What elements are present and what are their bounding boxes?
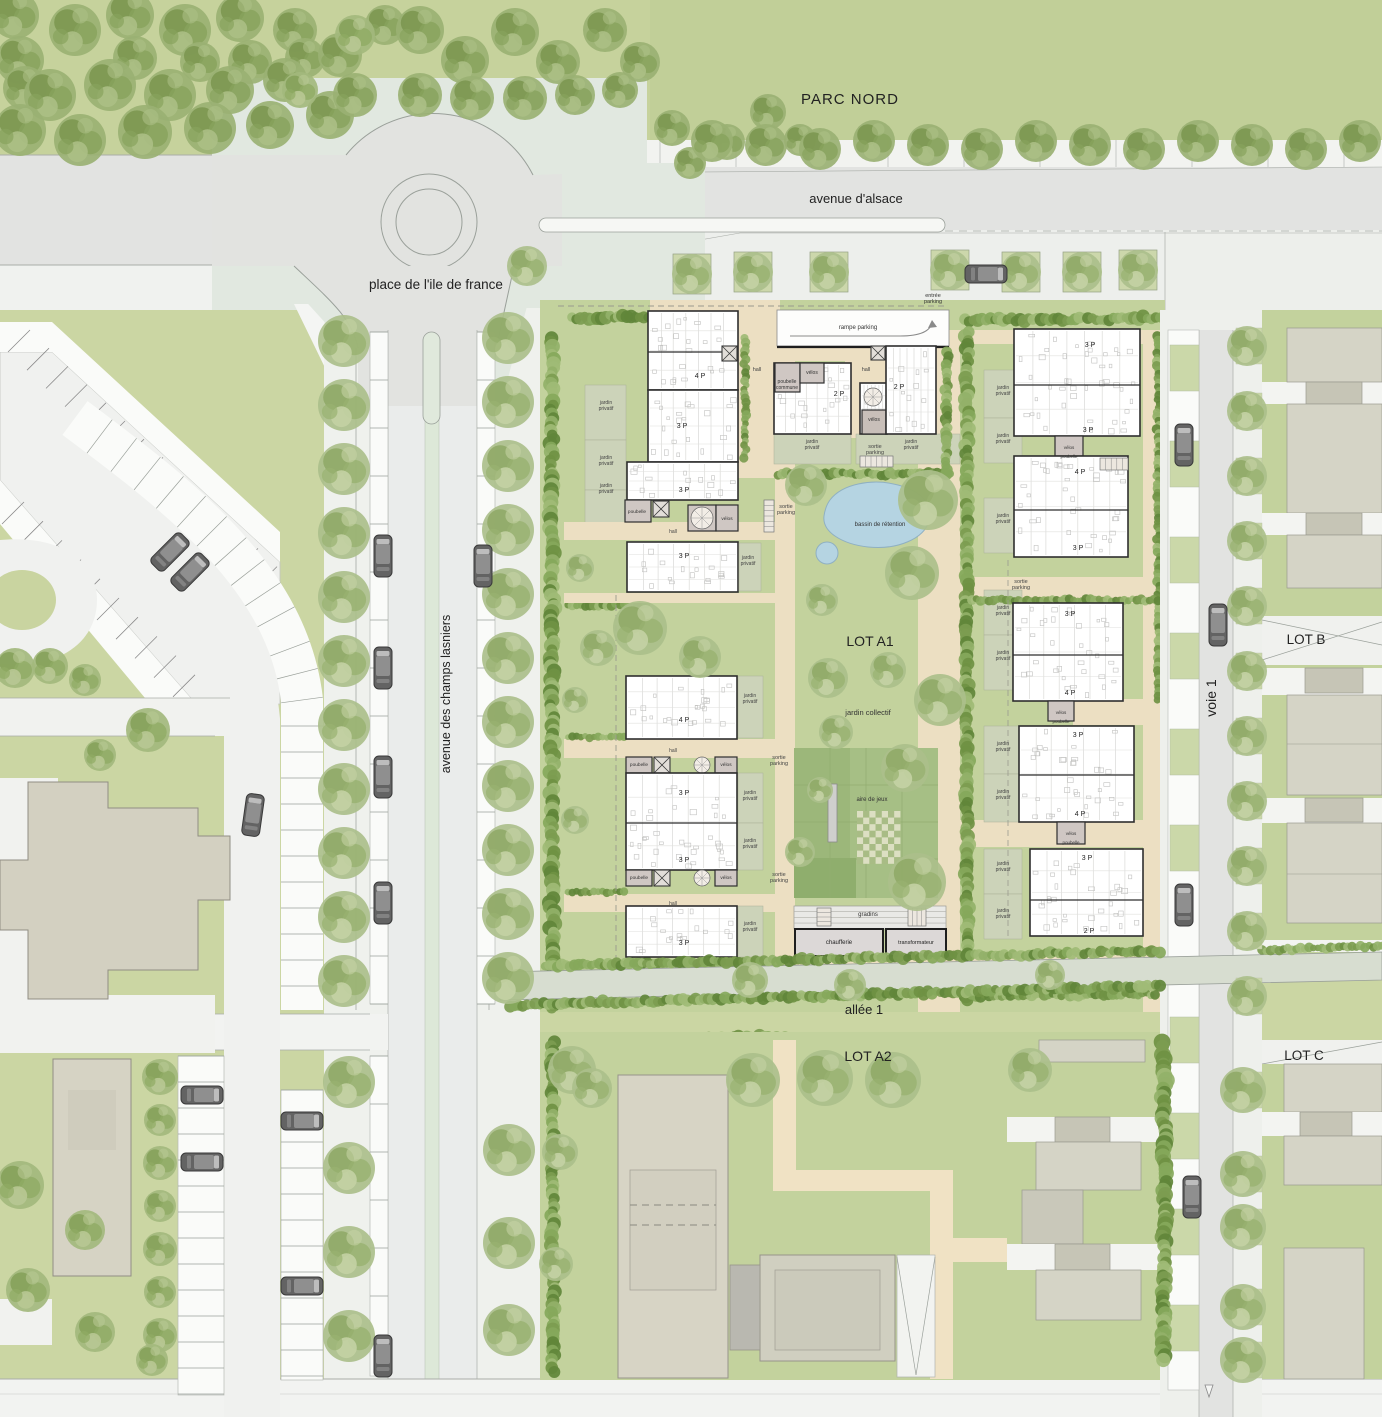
svg-text:parking: parking bbox=[770, 761, 788, 767]
svg-text:privatif: privatif bbox=[743, 844, 758, 850]
svg-text:3 P: 3 P bbox=[1065, 611, 1076, 618]
svg-text:4 P: 4 P bbox=[1075, 811, 1086, 818]
svg-text:vélos: vélos bbox=[806, 370, 818, 376]
svg-text:3 P: 3 P bbox=[679, 553, 690, 560]
svg-text:vélos: vélos bbox=[868, 417, 880, 423]
svg-text:vélos: vélos bbox=[720, 875, 732, 881]
svg-text:3 P: 3 P bbox=[677, 423, 688, 430]
svg-text:vélos: vélos bbox=[1066, 831, 1077, 836]
svg-text:privatif: privatif bbox=[805, 445, 820, 451]
svg-text:3 P: 3 P bbox=[679, 487, 690, 494]
svg-text:privatif: privatif bbox=[996, 914, 1011, 920]
svg-text:hall: hall bbox=[753, 367, 762, 373]
svg-text:privatif: privatif bbox=[996, 867, 1011, 873]
svg-text:privatif: privatif bbox=[904, 445, 919, 451]
svg-text:4 P: 4 P bbox=[1075, 469, 1086, 476]
svg-text:privatif: privatif bbox=[599, 489, 614, 495]
svg-text:vélos: vélos bbox=[1064, 445, 1075, 450]
svg-text:privatif: privatif bbox=[996, 439, 1011, 445]
svg-text:privatif: privatif bbox=[996, 611, 1011, 617]
svg-text:transformateur: transformateur bbox=[898, 940, 934, 946]
svg-text:poubelle: poubelle bbox=[1060, 454, 1078, 459]
svg-text:privatif: privatif bbox=[743, 796, 758, 802]
svg-text:rampe parking: rampe parking bbox=[839, 325, 877, 331]
svg-text:LOT A2: LOT A2 bbox=[844, 1048, 891, 1064]
svg-text:allée 1: allée 1 bbox=[845, 1002, 883, 1017]
svg-text:hall: hall bbox=[669, 901, 677, 907]
svg-text:parking: parking bbox=[770, 878, 788, 884]
svg-text:privatif: privatif bbox=[599, 461, 614, 467]
svg-text:poubelle: poubelle bbox=[628, 509, 646, 515]
svg-text:vélos: vélos bbox=[720, 762, 732, 768]
svg-text:3 P: 3 P bbox=[1073, 545, 1084, 552]
svg-text:4 P: 4 P bbox=[695, 373, 706, 380]
svg-text:LOT B: LOT B bbox=[1287, 632, 1326, 647]
svg-text:voie 1: voie 1 bbox=[1203, 679, 1219, 717]
svg-text:3 P: 3 P bbox=[1082, 855, 1093, 862]
svg-text:privatif: privatif bbox=[996, 795, 1011, 801]
svg-text:privatif: privatif bbox=[996, 747, 1011, 753]
svg-text:3 P: 3 P bbox=[1083, 427, 1094, 434]
svg-text:parking: parking bbox=[1012, 585, 1030, 591]
svg-text:parking: parking bbox=[777, 510, 795, 516]
svg-text:parking: parking bbox=[866, 450, 884, 456]
svg-text:bassin de rétention: bassin de rétention bbox=[855, 522, 906, 528]
svg-text:chaufferie: chaufferie bbox=[826, 940, 853, 946]
svg-text:PARC NORD: PARC NORD bbox=[801, 91, 899, 108]
svg-text:privatif: privatif bbox=[741, 561, 756, 567]
svg-text:3 P: 3 P bbox=[1085, 342, 1096, 349]
svg-text:4 P: 4 P bbox=[679, 717, 690, 724]
svg-text:poubelle: poubelle bbox=[630, 875, 648, 881]
svg-text:2 P: 2 P bbox=[894, 384, 905, 391]
svg-text:hall: hall bbox=[669, 529, 677, 535]
svg-text:poubelle: poubelle bbox=[630, 762, 648, 768]
svg-text:gradins: gradins bbox=[858, 912, 878, 918]
svg-text:poubelle: poubelle bbox=[1062, 840, 1080, 845]
svg-text:privatif: privatif bbox=[996, 391, 1011, 397]
svg-text:commune: commune bbox=[776, 385, 798, 391]
svg-text:hall: hall bbox=[862, 367, 871, 373]
svg-text:avenue d'alsace: avenue d'alsace bbox=[809, 191, 903, 206]
svg-text:place de l'ile de france: place de l'ile de france bbox=[369, 277, 503, 292]
svg-text:privatif: privatif bbox=[743, 927, 758, 933]
svg-text:privatif: privatif bbox=[996, 656, 1011, 662]
svg-text:2 P: 2 P bbox=[834, 391, 845, 398]
svg-text:2 P: 2 P bbox=[1084, 928, 1095, 935]
svg-text:4 P: 4 P bbox=[1065, 690, 1076, 697]
svg-text:privatif: privatif bbox=[743, 699, 758, 705]
svg-text:aire de jeux: aire de jeux bbox=[856, 797, 887, 803]
svg-text:privatif: privatif bbox=[599, 406, 614, 412]
svg-text:vélos: vélos bbox=[721, 516, 733, 522]
svg-text:avenue des champs lasniers: avenue des champs lasniers bbox=[439, 615, 453, 773]
svg-text:hall: hall bbox=[669, 748, 677, 754]
svg-text:3 P: 3 P bbox=[679, 790, 690, 797]
svg-text:3 P: 3 P bbox=[679, 857, 690, 864]
svg-text:jardin collectif: jardin collectif bbox=[844, 708, 891, 717]
svg-text:3 P: 3 P bbox=[1073, 732, 1084, 739]
svg-text:LOT A1: LOT A1 bbox=[846, 633, 893, 649]
svg-text:vélos: vélos bbox=[1056, 710, 1067, 715]
svg-text:privatif: privatif bbox=[996, 519, 1011, 525]
svg-text:LOT C: LOT C bbox=[1284, 1048, 1324, 1063]
svg-text:parking: parking bbox=[924, 299, 942, 305]
svg-text:poubelle: poubelle bbox=[1052, 719, 1070, 724]
svg-text:3 P: 3 P bbox=[679, 940, 690, 947]
